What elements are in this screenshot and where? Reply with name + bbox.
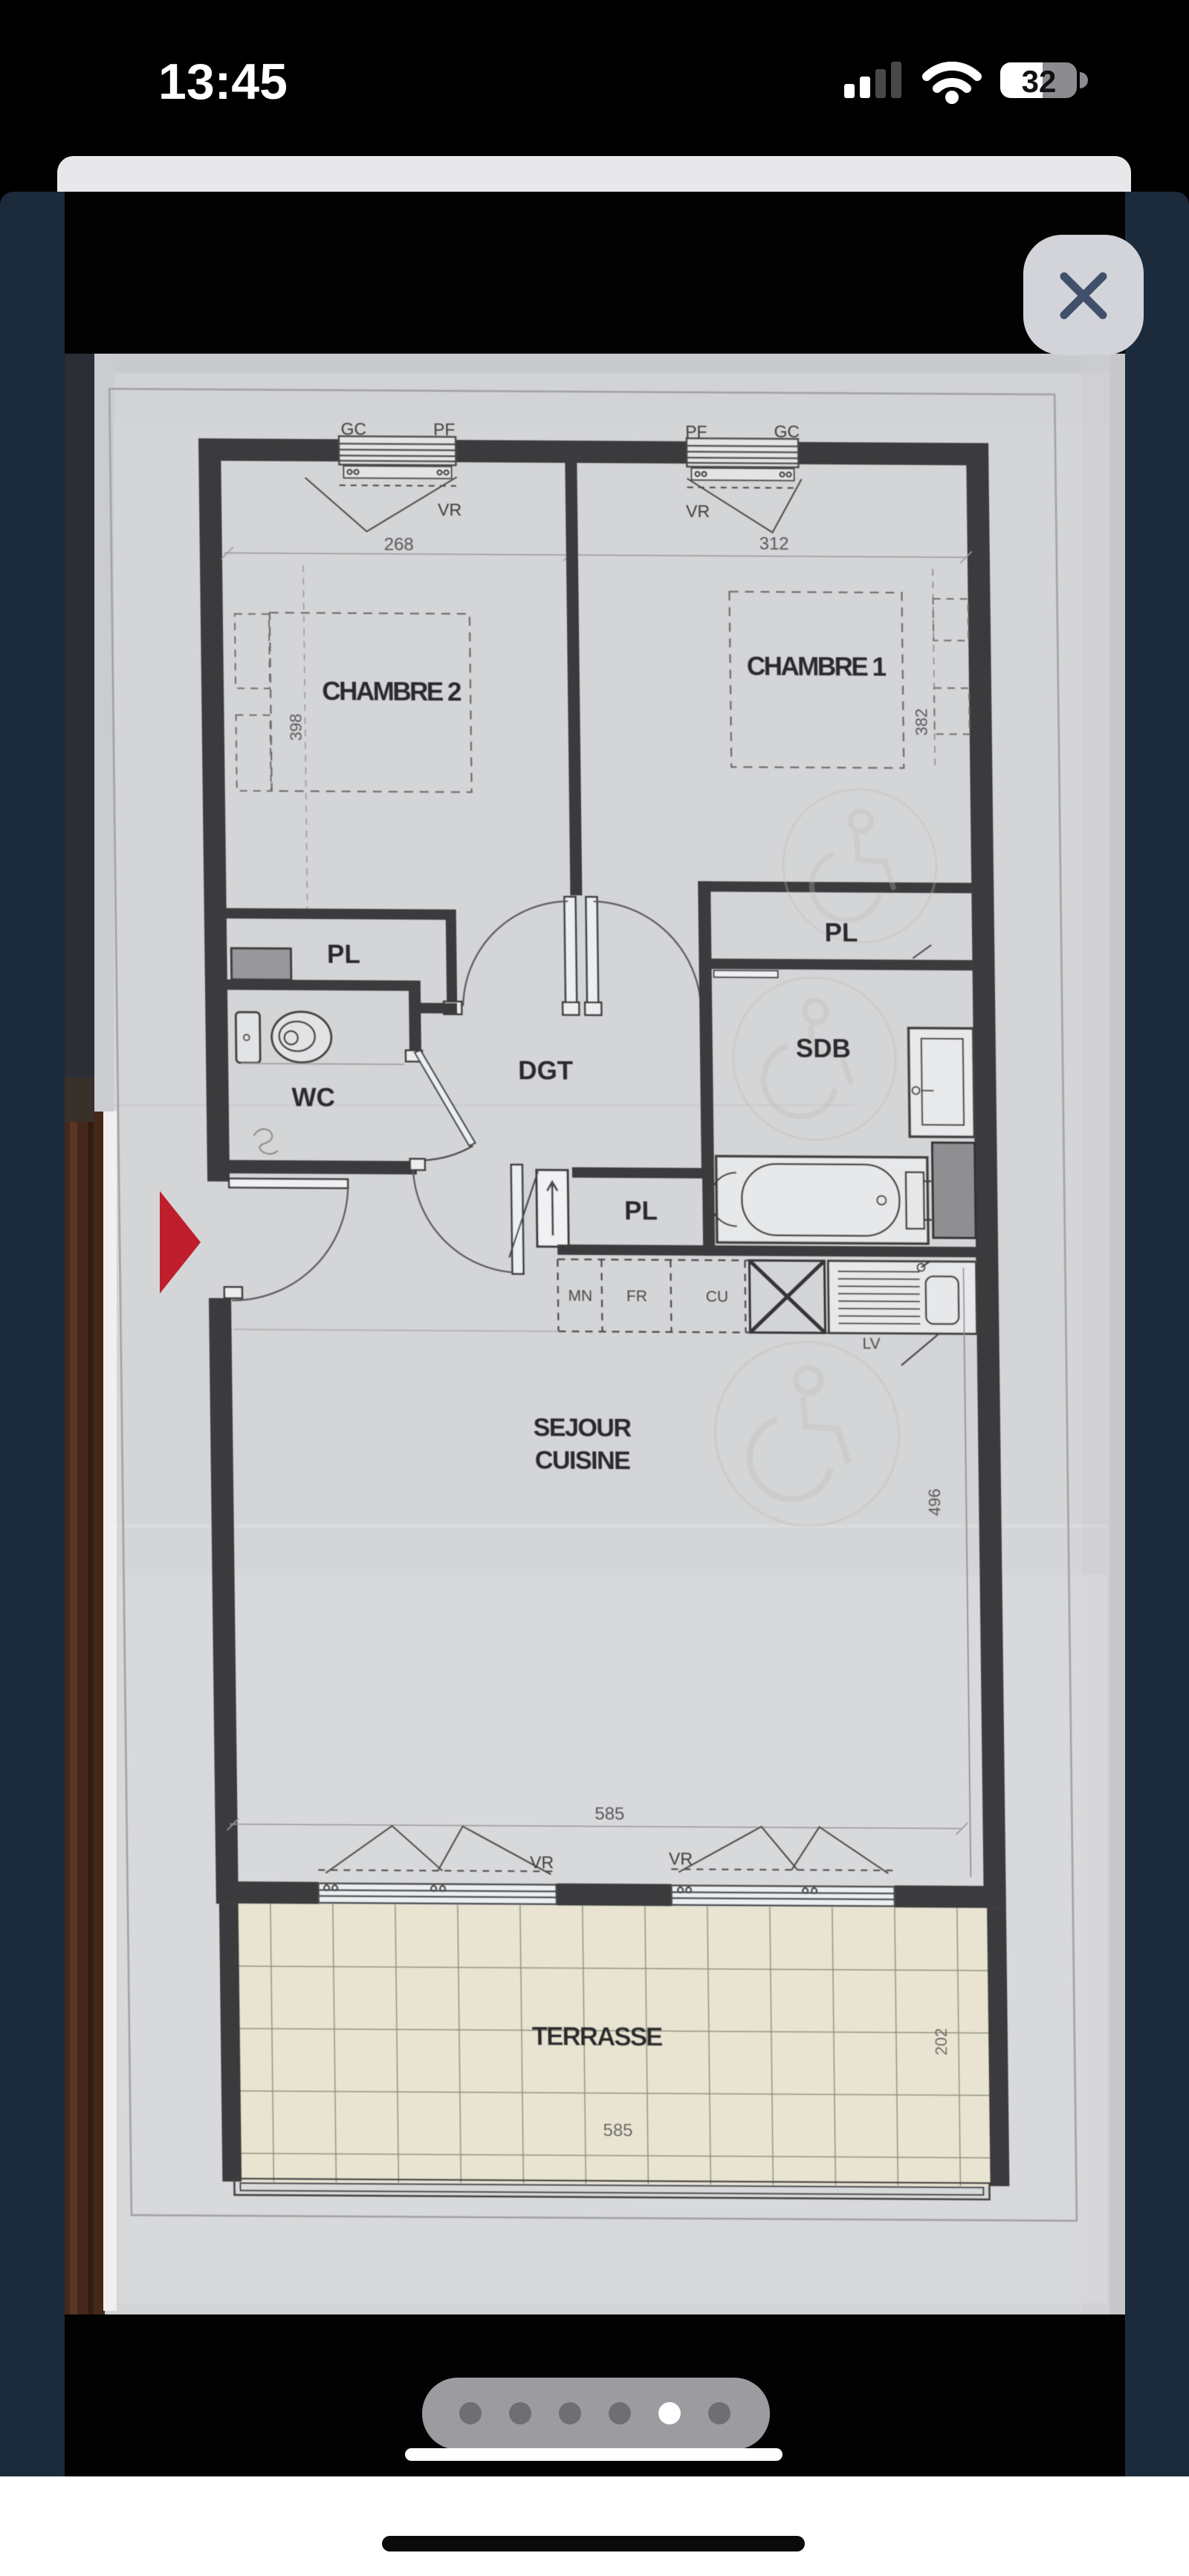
svg-text:LV: LV <box>862 1335 880 1352</box>
svg-text:CUISINE: CUISINE <box>535 1447 631 1476</box>
svg-text:MN: MN <box>568 1288 592 1305</box>
svg-text:585: 585 <box>594 1804 624 1824</box>
svg-text:CU: CU <box>706 1288 729 1305</box>
svg-text:FR: FR <box>626 1288 647 1305</box>
svg-text:PL: PL <box>824 918 858 947</box>
svg-text:VR: VR <box>686 502 710 521</box>
svg-text:VR: VR <box>669 1849 693 1869</box>
svg-text:SDB: SDB <box>796 1034 851 1063</box>
svg-text:496: 496 <box>925 1488 944 1516</box>
svg-text:202: 202 <box>932 2028 950 2055</box>
svg-text:398: 398 <box>286 713 305 741</box>
svg-text:PF: PF <box>433 420 456 439</box>
svg-text:PF: PF <box>685 422 707 441</box>
svg-text:32: 32 <box>1022 64 1057 99</box>
svg-text:312: 312 <box>759 534 788 554</box>
svg-text:WC: WC <box>291 1083 335 1112</box>
svg-text:GC: GC <box>340 419 366 438</box>
svg-text:PL: PL <box>624 1196 658 1225</box>
svg-text:268: 268 <box>384 534 414 554</box>
svg-text:PL: PL <box>327 940 360 969</box>
svg-text:SEJOUR: SEJOUR <box>533 1414 631 1443</box>
svg-text:13:45: 13:45 <box>158 53 288 110</box>
svg-text:TERRASSE: TERRASSE <box>531 2022 662 2052</box>
svg-text:585: 585 <box>603 2121 632 2141</box>
svg-text:VR: VR <box>438 500 461 519</box>
svg-text:DGT: DGT <box>518 1057 573 1086</box>
svg-text:GC: GC <box>774 422 800 441</box>
svg-text:VR: VR <box>530 1853 554 1872</box>
svg-text:CHAMBRE 2: CHAMBRE 2 <box>322 677 461 707</box>
svg-text:CHAMBRE 1: CHAMBRE 1 <box>747 652 887 681</box>
svg-text:382: 382 <box>912 708 930 736</box>
